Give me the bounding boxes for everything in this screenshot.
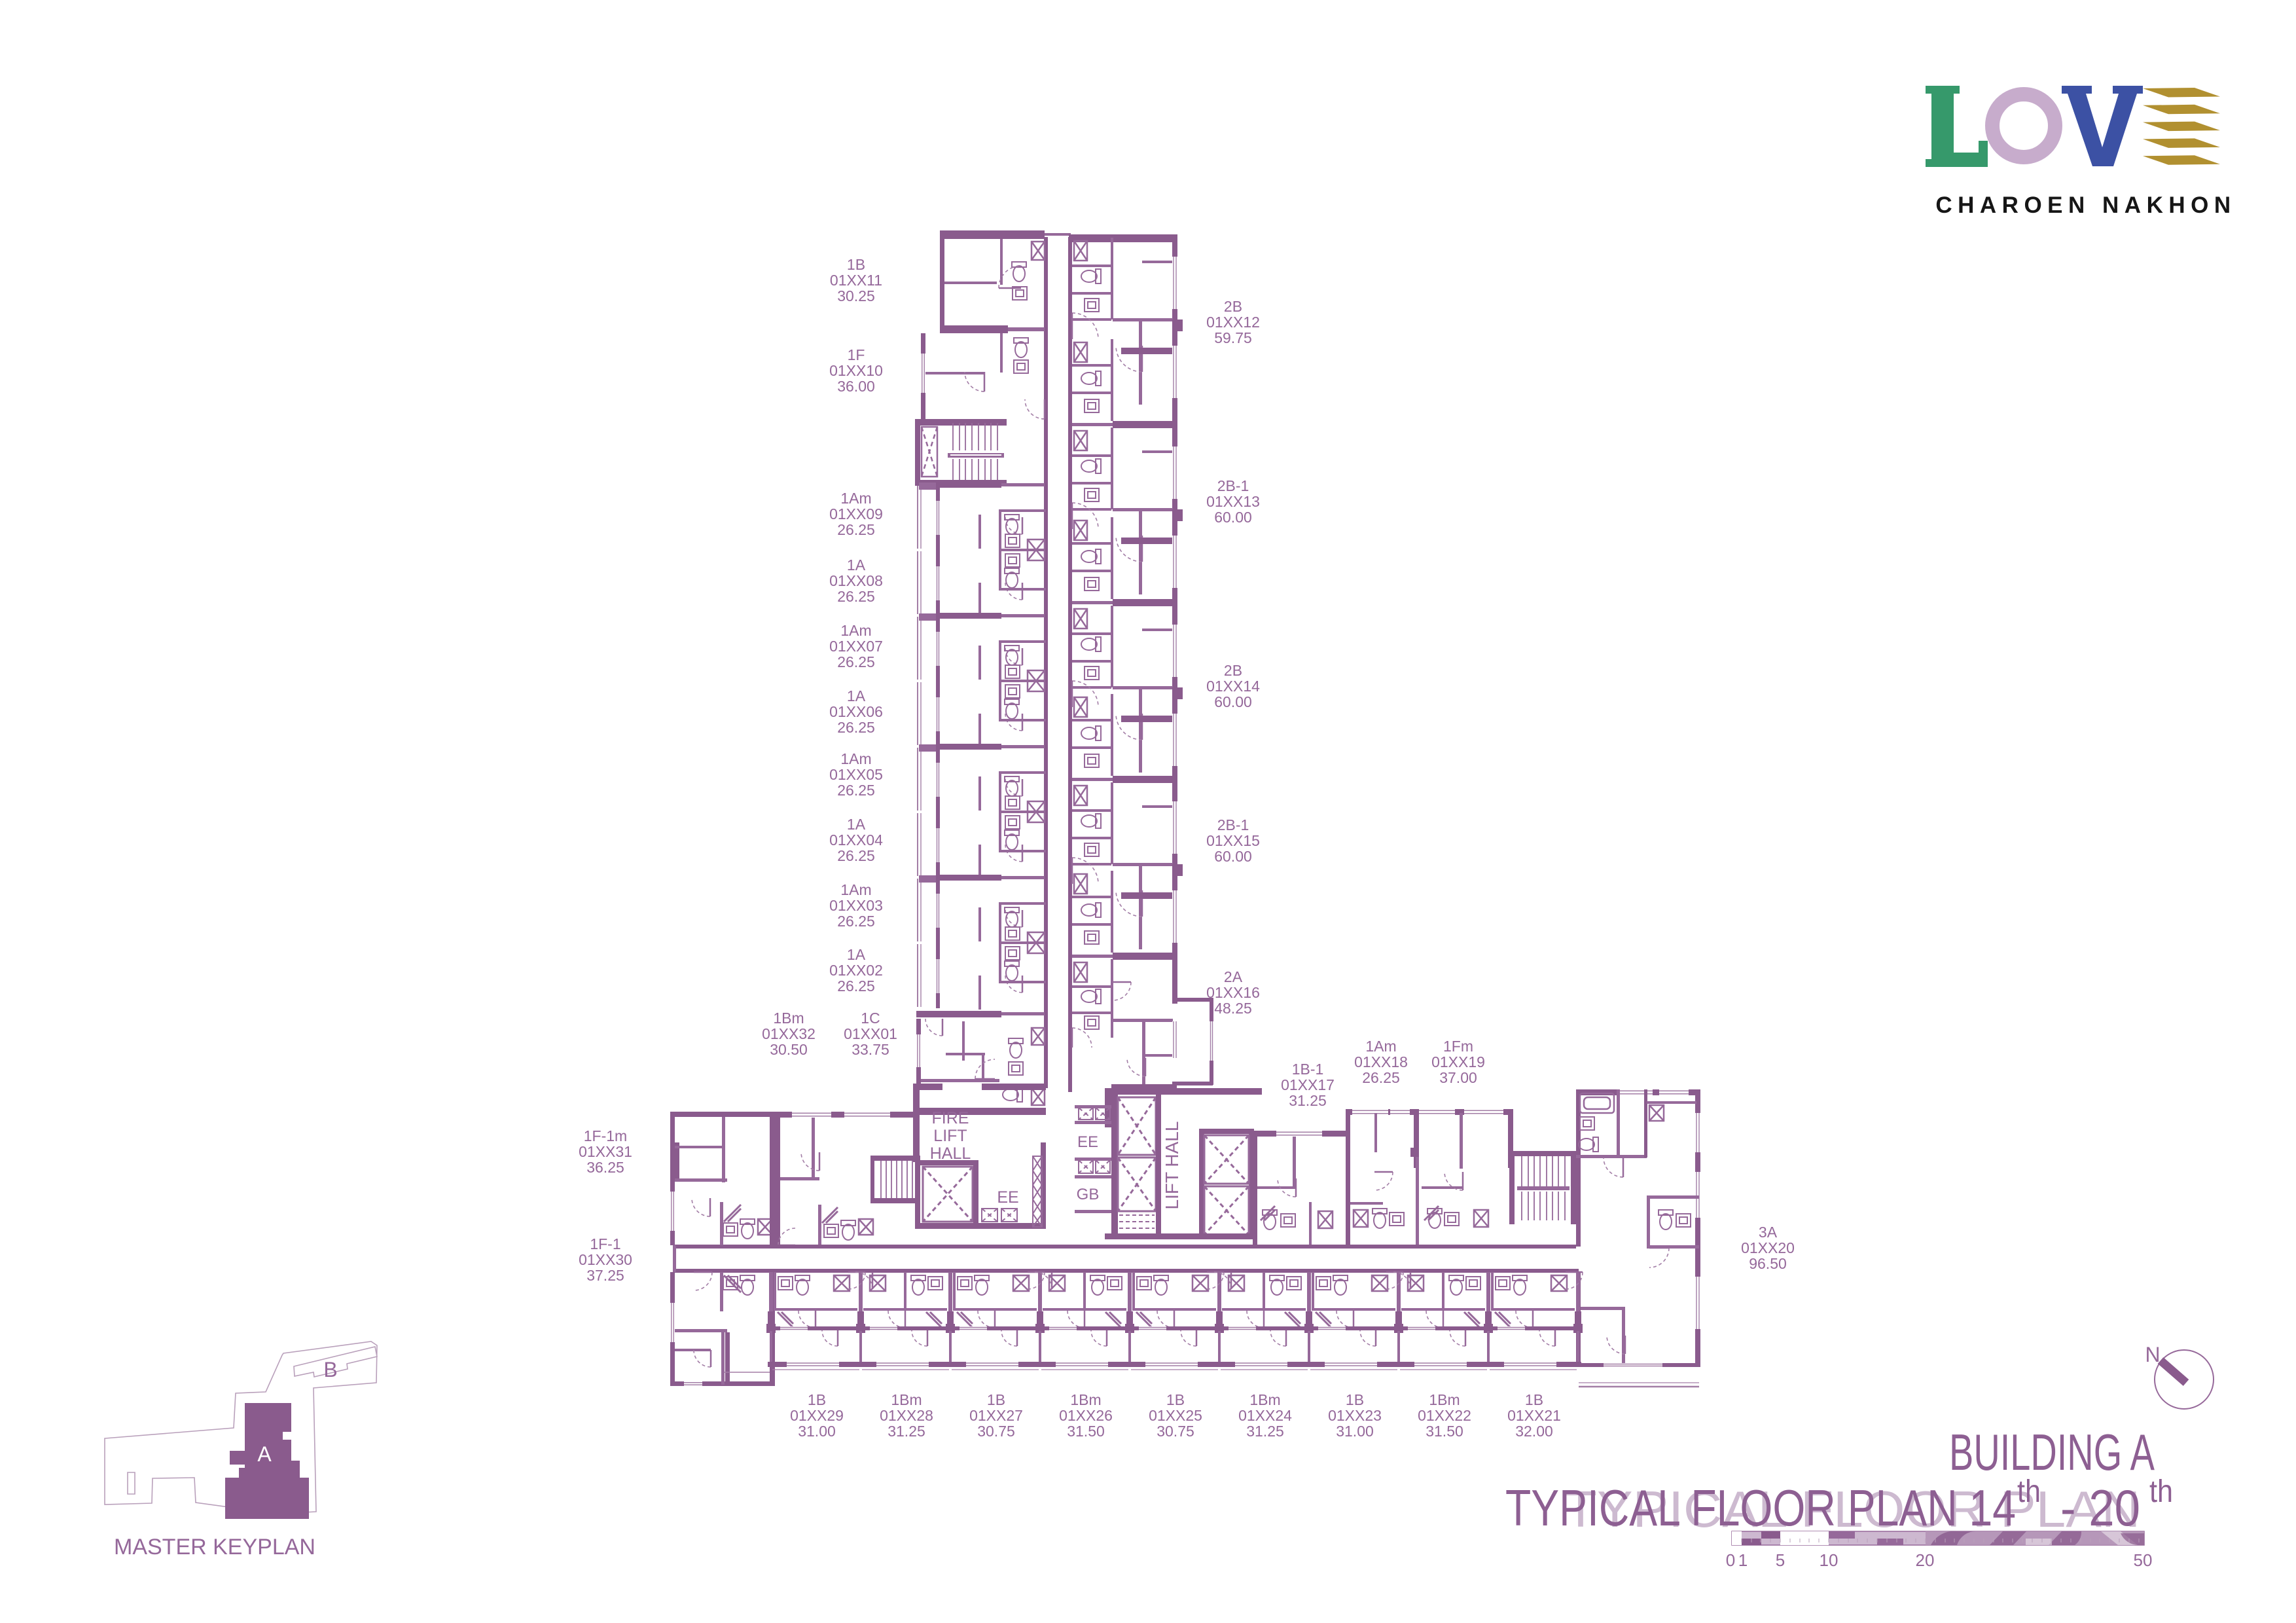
- svg-text:1: 1: [1738, 1550, 1748, 1570]
- svg-text:LIFT HALL: LIFT HALL: [1162, 1122, 1182, 1210]
- svg-text:1F-1m01XX3136.25: 1F-1m01XX3136.25: [579, 1127, 632, 1176]
- svg-text:CHAROEN NAKHON: CHAROEN NAKHON: [1935, 192, 2236, 218]
- svg-text:- 20: - 20: [2060, 1479, 2140, 1537]
- svg-text:50: 50: [2134, 1550, 2153, 1570]
- svg-text:FIRELIFTHALL: FIRELIFTHALL: [930, 1109, 971, 1163]
- svg-text:10: 10: [1820, 1550, 1839, 1570]
- svg-text:GB: GB: [1077, 1186, 1100, 1203]
- svg-text:EE: EE: [997, 1188, 1018, 1207]
- svg-text:TYPICAL FLOOR PLAN 14: TYPICAL FLOOR PLAN 14: [1505, 1479, 2016, 1537]
- svg-text:A: A: [257, 1442, 272, 1466]
- svg-text:th: th: [2017, 1474, 2041, 1509]
- svg-text:5: 5: [1776, 1550, 1785, 1570]
- svg-text:N: N: [2145, 1343, 2160, 1366]
- svg-text:0: 0: [1726, 1550, 1735, 1570]
- svg-text:B: B: [323, 1358, 337, 1381]
- svg-text:th: th: [2149, 1474, 2173, 1509]
- svg-text:EE: EE: [1077, 1133, 1098, 1151]
- svg-text:BUILDING A: BUILDING A: [1949, 1423, 2155, 1481]
- svg-text:20: 20: [1916, 1550, 1935, 1570]
- svg-text:MASTER KEYPLAN: MASTER KEYPLAN: [114, 1535, 315, 1559]
